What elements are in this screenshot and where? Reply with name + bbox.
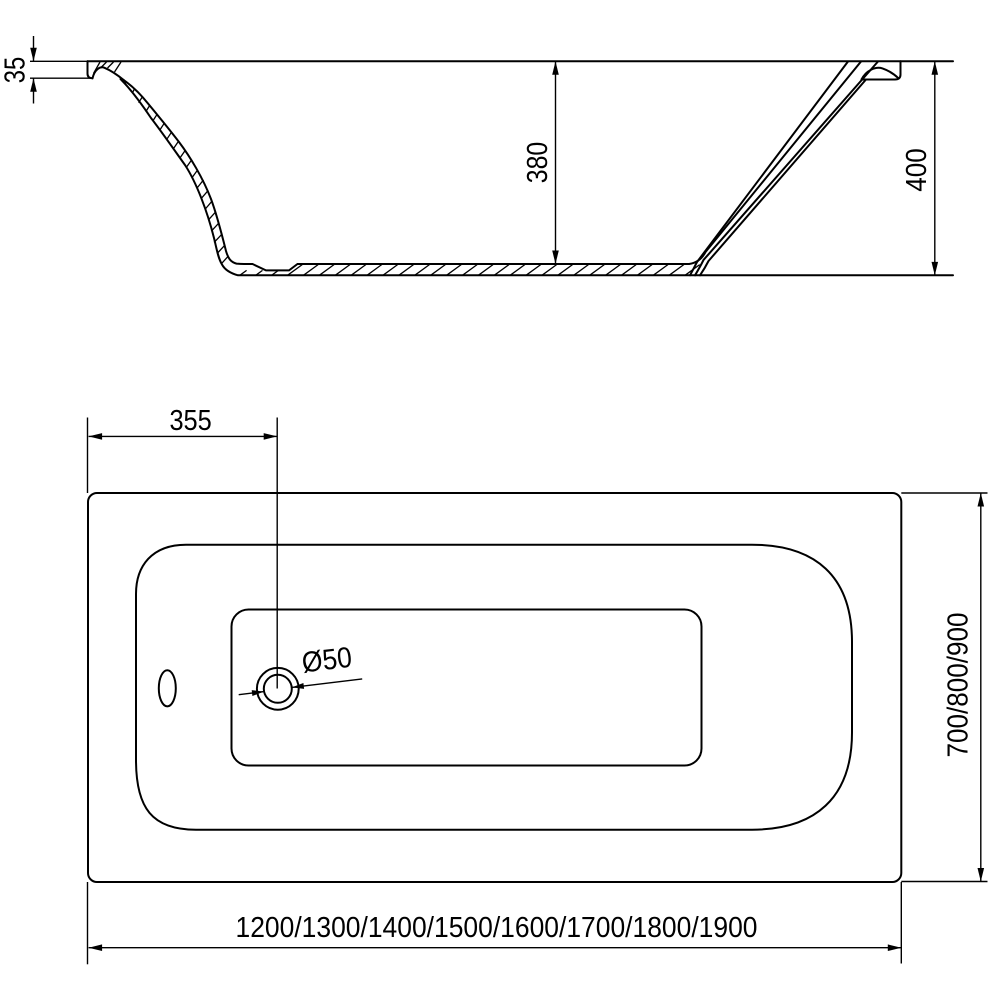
svg-text:400: 400 bbox=[901, 148, 933, 191]
svg-text:Ø50: Ø50 bbox=[300, 642, 353, 680]
svg-text:35: 35 bbox=[0, 57, 32, 84]
svg-text:1200/1300/1400/1500/1600/1700/: 1200/1300/1400/1500/1600/1700/1800/1900 bbox=[236, 912, 758, 944]
svg-text:355: 355 bbox=[169, 405, 211, 437]
svg-text:380: 380 bbox=[522, 142, 554, 184]
svg-text:700/800/900: 700/800/900 bbox=[943, 613, 975, 758]
